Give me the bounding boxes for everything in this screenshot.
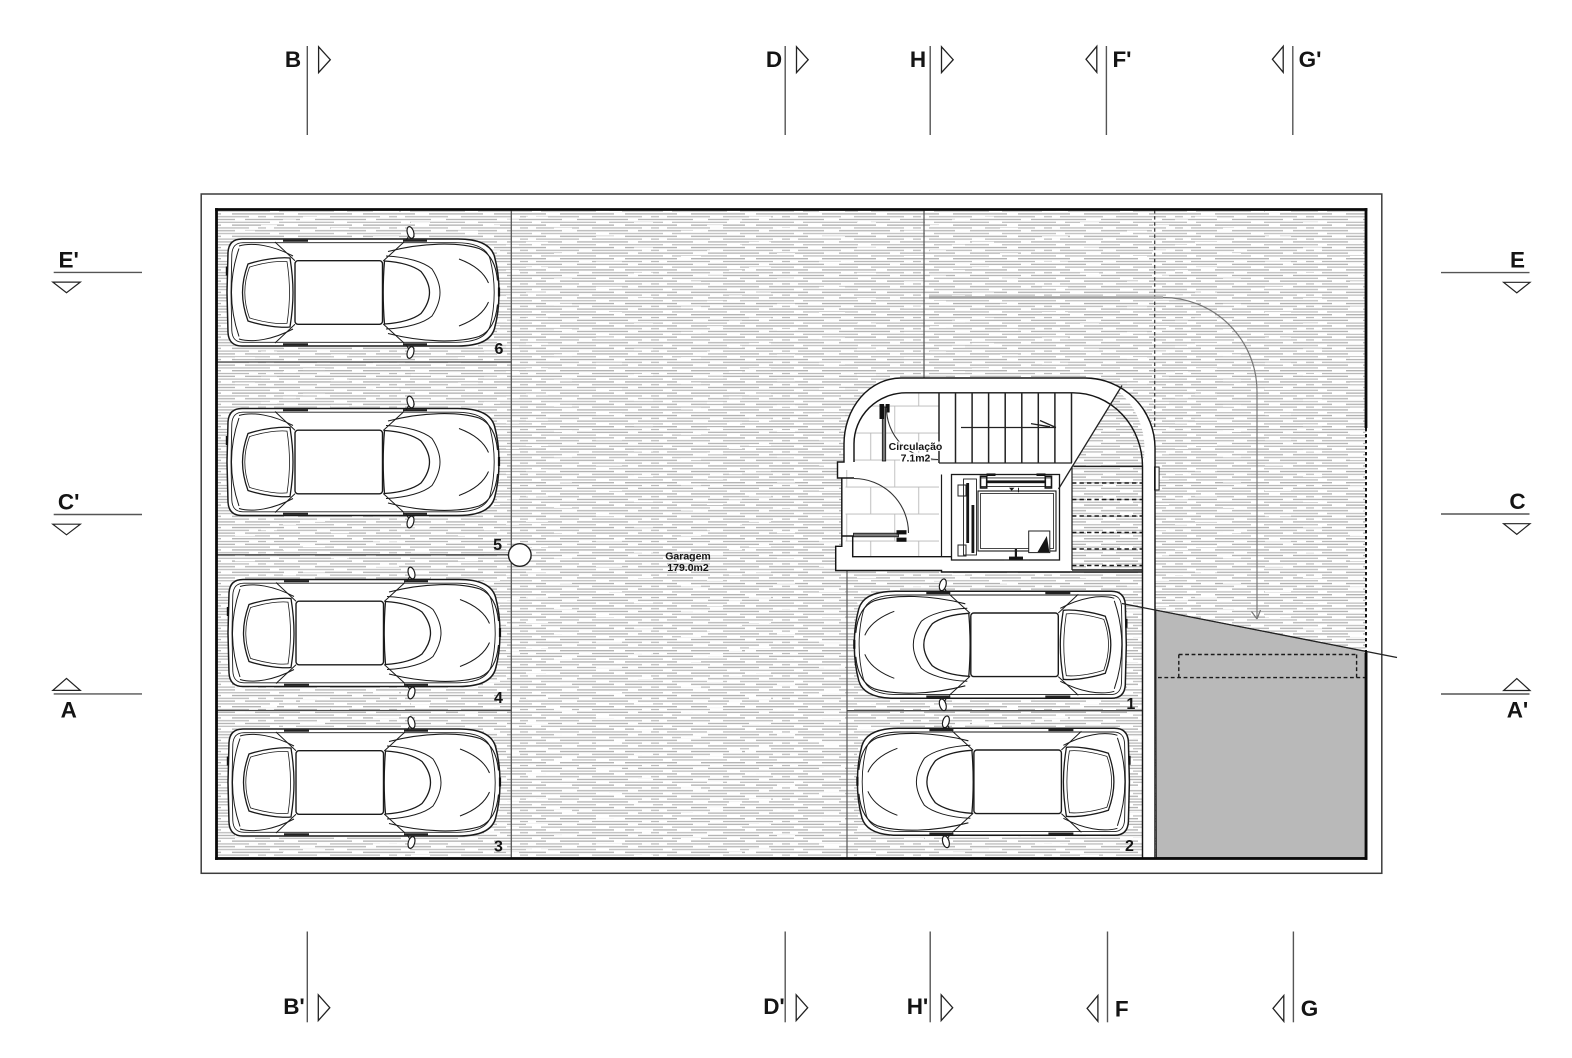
svg-text:D': D' bbox=[763, 994, 785, 1019]
svg-text:G: G bbox=[1301, 996, 1319, 1021]
svg-text:6: 6 bbox=[495, 341, 504, 358]
svg-text:F': F' bbox=[1112, 47, 1131, 72]
svg-text:G': G' bbox=[1299, 47, 1322, 72]
svg-text:A: A bbox=[61, 697, 77, 722]
svg-text:F: F bbox=[1115, 997, 1129, 1022]
svg-text:5: 5 bbox=[493, 537, 502, 554]
svg-text:H': H' bbox=[907, 994, 929, 1019]
svg-text:Garagem: Garagem bbox=[665, 551, 711, 563]
svg-text:C: C bbox=[1509, 489, 1525, 514]
svg-text:179.0m2: 179.0m2 bbox=[667, 562, 709, 574]
svg-text:1: 1 bbox=[1126, 696, 1135, 713]
svg-text:B: B bbox=[285, 47, 301, 72]
svg-text:4: 4 bbox=[494, 690, 503, 707]
svg-text:Circulação: Circulação bbox=[889, 441, 943, 453]
svg-text:E: E bbox=[1510, 248, 1525, 273]
svg-text:7.1m2: 7.1m2 bbox=[901, 453, 931, 465]
svg-text:E': E' bbox=[59, 247, 79, 272]
svg-text:3: 3 bbox=[494, 838, 503, 855]
svg-text:C': C' bbox=[58, 490, 80, 515]
svg-text:D: D bbox=[766, 47, 782, 72]
svg-text:H: H bbox=[910, 47, 926, 72]
svg-text:B': B' bbox=[283, 994, 305, 1019]
svg-text:2: 2 bbox=[1125, 838, 1134, 855]
svg-text:A': A' bbox=[1507, 698, 1529, 723]
